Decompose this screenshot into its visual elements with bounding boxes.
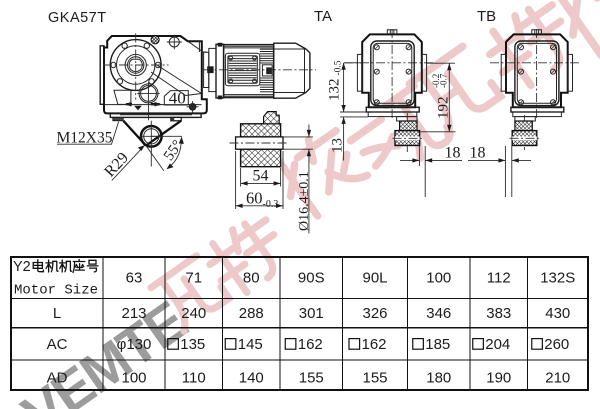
svg-text:-0.7: -0.7: [439, 73, 449, 88]
svg-text:140: 140: [239, 370, 264, 387]
svg-text:100: 100: [426, 270, 451, 287]
svg-text:L: L: [53, 305, 61, 322]
svg-text:AC: AC: [47, 336, 68, 353]
svg-text:240: 240: [181, 305, 206, 322]
svg-text:326: 326: [362, 305, 387, 322]
svg-text:φ130: φ130: [117, 336, 152, 353]
svg-text:54: 54: [253, 168, 269, 185]
svg-text:346: 346: [426, 305, 451, 322]
svg-text:GKA57T: GKA57T: [48, 10, 107, 26]
svg-text:TA: TA: [314, 8, 332, 25]
svg-text:18: 18: [445, 145, 461, 162]
svg-text:112: 112: [487, 270, 511, 287]
svg-text:430: 430: [545, 305, 570, 322]
svg-text:135: 135: [180, 336, 205, 353]
svg-text:210: 210: [545, 370, 570, 387]
svg-text:132: 132: [327, 79, 343, 102]
svg-text:162: 162: [298, 336, 323, 353]
svg-text:288: 288: [239, 305, 264, 322]
svg-text:145: 145: [238, 336, 263, 353]
svg-text:110: 110: [182, 370, 206, 387]
svg-text:185: 185: [425, 336, 450, 353]
svg-text:213: 213: [121, 305, 146, 322]
svg-text:155: 155: [299, 370, 324, 387]
svg-text:TB: TB: [477, 8, 496, 25]
svg-text:155: 155: [362, 370, 387, 387]
svg-text:180: 180: [426, 370, 451, 387]
svg-text:18: 18: [470, 145, 486, 162]
svg-text:383: 383: [486, 305, 511, 322]
svg-text:90S: 90S: [298, 270, 325, 287]
svg-text:100: 100: [121, 370, 146, 387]
svg-text:162: 162: [362, 336, 387, 353]
svg-text:60: 60: [246, 189, 263, 208]
svg-text:190: 190: [486, 370, 511, 387]
svg-text:132S: 132S: [540, 270, 575, 287]
svg-text:13: 13: [330, 138, 346, 153]
svg-text:71: 71: [185, 270, 202, 287]
svg-text:-0.5: -0.5: [334, 60, 344, 75]
svg-text:Motor Size: Motor Size: [14, 283, 98, 299]
svg-text:204: 204: [485, 336, 510, 353]
svg-text:63: 63: [126, 270, 143, 287]
svg-text:80: 80: [243, 270, 260, 287]
svg-text:192: 192: [436, 97, 452, 120]
svg-text:-0.3: -0.3: [263, 199, 279, 210]
svg-text:301: 301: [299, 305, 324, 322]
svg-text:Y2: Y2: [13, 259, 31, 275]
svg-text:260: 260: [544, 336, 569, 353]
svg-text:90L: 90L: [362, 270, 387, 287]
svg-text:Ø16.4±0.1: Ø16.4±0.1: [297, 171, 312, 231]
svg-text:AD: AD: [47, 370, 68, 387]
